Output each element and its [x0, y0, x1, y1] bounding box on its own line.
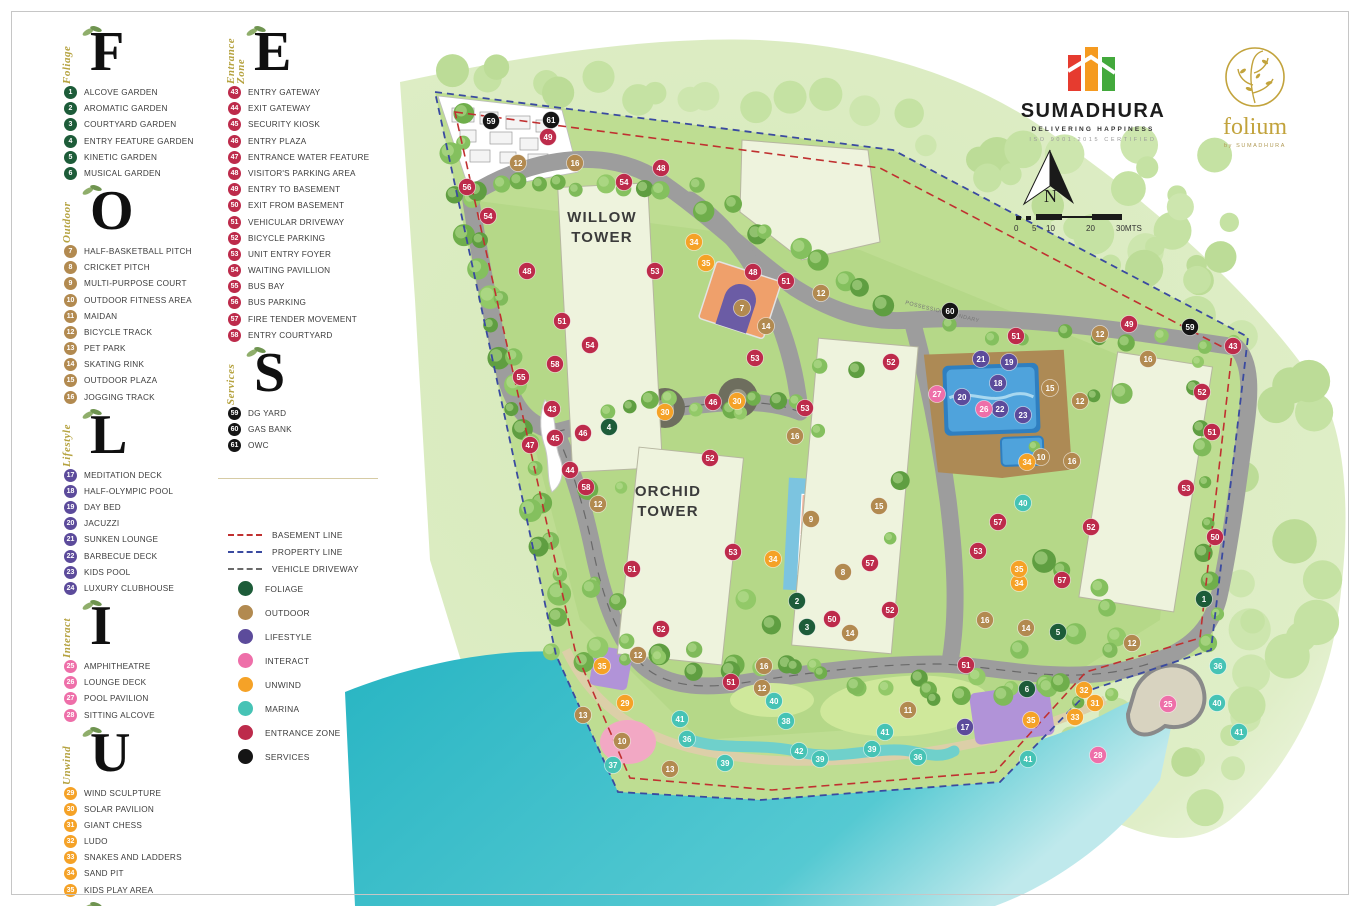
svg-text:53: 53 — [801, 404, 810, 413]
svg-text:41: 41 — [676, 715, 685, 724]
svg-text:9: 9 — [809, 515, 814, 524]
svg-text:21: 21 — [977, 355, 986, 364]
legend-item-label: BARBECUE DECK — [84, 550, 157, 562]
legend-item-number-badge: 46 — [228, 135, 241, 148]
map-marker-51: 51 — [1204, 424, 1221, 441]
map-marker-57: 57 — [862, 555, 879, 572]
legend-item: 2AROMATIC GARDEN — [64, 102, 219, 115]
map-marker-54: 54 — [616, 174, 633, 191]
svg-text:51: 51 — [628, 565, 637, 574]
legend-divider — [218, 478, 378, 479]
svg-text:39: 39 — [721, 759, 730, 768]
legend-item-number-badge: 14 — [64, 358, 77, 371]
legend-item: 50EXIT FROM BASEMENT — [228, 199, 398, 212]
map-marker-35: 35 — [698, 255, 715, 272]
scale-bar: 0 5 10 20 30MTS — [1014, 214, 1142, 233]
svg-text:41: 41 — [1235, 728, 1244, 737]
legend-item-label: LUDO — [84, 835, 108, 847]
map-marker-51: 51 — [778, 273, 795, 290]
svg-text:10: 10 — [1046, 224, 1055, 233]
svg-text:12: 12 — [817, 289, 826, 298]
map-marker-16: 16 — [567, 155, 584, 172]
legend-section-title: Foliage — [62, 32, 72, 84]
legend-column-2: Entrance ZoneE43ENTRY GATEWAY44EXIT GATE… — [228, 30, 398, 773]
map-marker-52: 52 — [653, 621, 670, 638]
svg-text:53: 53 — [751, 354, 760, 363]
legend-item-label: BUS PARKING — [248, 296, 306, 308]
legend-item-number-badge: 31 — [64, 819, 77, 832]
svg-text:18: 18 — [994, 379, 1003, 388]
map-marker-38: 38 — [778, 713, 795, 730]
svg-text:59: 59 — [1186, 323, 1195, 332]
map-marker-50: 50 — [1207, 529, 1224, 546]
legend-item: 29WIND SCULPTURE — [64, 787, 219, 800]
svg-text:57: 57 — [1058, 576, 1067, 585]
legend-item: 52BICYCLE PARKING — [228, 232, 398, 245]
svg-text:46: 46 — [579, 429, 588, 438]
legend-item-number-badge: 1 — [64, 86, 77, 99]
svg-text:2: 2 — [795, 597, 800, 606]
map-marker-12: 12 — [754, 680, 771, 697]
svg-text:31: 31 — [1091, 699, 1100, 708]
legend-section-header: UnwindU — [64, 731, 219, 781]
legend-item-number-badge: 17 — [64, 469, 77, 482]
svg-text:22: 22 — [996, 405, 1005, 414]
svg-text:35: 35 — [1027, 716, 1036, 725]
map-marker-45: 45 — [547, 430, 564, 447]
svg-text:8: 8 — [841, 568, 846, 577]
map-marker-50: 50 — [824, 611, 841, 628]
legend-item-label: DAY BED — [84, 501, 121, 513]
legend-item: 61OWC — [228, 439, 398, 452]
category-color-dot — [238, 653, 253, 668]
map-marker-34: 34 — [686, 234, 703, 251]
map-marker-12: 12 — [1072, 393, 1089, 410]
map-marker-51: 51 — [958, 657, 975, 674]
category-legend-item: FOLIAGE — [238, 581, 398, 596]
legend-item-number-badge: 2 — [64, 102, 77, 115]
legend-item-number-badge: 10 — [64, 294, 77, 307]
legend-item-number-badge: 55 — [228, 280, 241, 293]
line-legend-label: VEHICLE DRIVEWAY — [272, 564, 359, 574]
legend-item-number-badge: 57 — [228, 313, 241, 326]
svg-text:43: 43 — [1229, 342, 1238, 351]
legend-item-label: EXIT FROM BASEMENT — [248, 199, 344, 211]
svg-text:40: 40 — [1213, 699, 1222, 708]
map-marker-39: 39 — [812, 751, 829, 768]
legend-section-header: Entrance ZoneE — [228, 30, 398, 80]
legend-item-label: VISITOR'S PARKING AREA — [248, 167, 356, 179]
legend-section-letter: S — [254, 343, 285, 403]
map-marker-30: 30 — [729, 393, 746, 410]
legend-item: 47ENTRANCE WATER FEATURE — [228, 151, 398, 164]
svg-text:54: 54 — [586, 341, 595, 350]
legend-item: 51VEHICULAR DRIVEWAY — [228, 216, 398, 229]
legend-item: 55BUS BAY — [228, 280, 398, 293]
svg-text:46: 46 — [709, 398, 718, 407]
svg-text:15: 15 — [875, 502, 884, 511]
svg-text:14: 14 — [762, 322, 771, 331]
legend-item-label: ALCOVE GARDEN — [84, 86, 158, 98]
svg-text:40: 40 — [770, 697, 779, 706]
svg-text:51: 51 — [1208, 428, 1217, 437]
legend-section-title: Entrance Zone — [226, 32, 246, 84]
line-legend-label: PROPERTY LINE — [272, 547, 343, 557]
legend-item-number-badge: 20 — [64, 517, 77, 530]
svg-text:16: 16 — [981, 616, 990, 625]
legend-item-number-badge: 53 — [228, 248, 241, 261]
legend-item-number-badge: 19 — [64, 501, 77, 514]
map-marker-51: 51 — [723, 674, 740, 691]
map-marker-35: 35 — [1023, 712, 1040, 729]
legend-item-number-badge: 22 — [64, 550, 77, 563]
legend-item-label: WAITING PAVILLION — [248, 264, 330, 276]
svg-text:1: 1 — [1202, 595, 1207, 604]
svg-text:5: 5 — [1056, 628, 1061, 637]
legend-item-number-badge: 32 — [64, 835, 77, 848]
svg-text:36: 36 — [683, 735, 692, 744]
svg-text:28: 28 — [1094, 751, 1103, 760]
svg-text:39: 39 — [868, 745, 877, 754]
legend-item: 6MUSICAL GARDEN — [64, 167, 219, 180]
category-legend-item: ENTRANCE ZONE — [238, 725, 398, 740]
legend-item-label: DG YARD — [248, 407, 286, 419]
svg-text:54: 54 — [484, 212, 493, 221]
svg-text:30MTS: 30MTS — [1116, 224, 1142, 233]
legend-item-number-badge: 21 — [64, 533, 77, 546]
legend-item-label: MULTI-PURPOSE COURT — [84, 277, 187, 289]
map-marker-12: 12 — [510, 155, 527, 172]
map-marker-42: 42 — [791, 743, 808, 760]
svg-text:51: 51 — [962, 661, 971, 670]
legend-item-label: JOGGING TRACK — [84, 391, 155, 403]
legend-item-number-badge: 7 — [64, 245, 77, 258]
category-color-dot — [238, 725, 253, 740]
svg-text:12: 12 — [1096, 330, 1105, 339]
map-marker-41: 41 — [1231, 724, 1248, 741]
legend-item-label: BICYCLE PARKING — [248, 232, 325, 244]
legend-item-label: CRICKET PITCH — [84, 261, 150, 273]
svg-text:0: 0 — [1014, 224, 1019, 233]
svg-text:3: 3 — [805, 623, 810, 632]
category-legend-item: SERVICES — [238, 749, 398, 764]
svg-text:14: 14 — [846, 629, 855, 638]
svg-text:51: 51 — [727, 678, 736, 687]
map-marker-56: 56 — [459, 179, 476, 196]
map-marker-10: 10 — [614, 733, 631, 750]
line-swatch — [228, 568, 262, 570]
legend-section-letter: U — [90, 723, 130, 783]
svg-text:53: 53 — [729, 548, 738, 557]
svg-text:16: 16 — [1144, 355, 1153, 364]
legend-item-number-badge: 45 — [228, 118, 241, 131]
category-legend-label: ENTRANCE ZONE — [265, 728, 341, 738]
svg-text:TOWER: TOWER — [571, 229, 633, 246]
legend-item: 11MAIDAN — [64, 310, 219, 323]
legend-item-label: MAIDAN — [84, 310, 117, 322]
legend-item-label: BUS BAY — [248, 280, 285, 292]
map-marker-23: 23 — [1015, 407, 1032, 424]
map-marker-53: 53 — [797, 400, 814, 417]
legend-item-number-badge: 16 — [64, 391, 77, 404]
svg-text:17: 17 — [961, 723, 970, 732]
legend-item-label: LUXURY CLUBHOUSE — [84, 582, 174, 594]
map-marker-2: 2 — [789, 593, 806, 610]
sumadhura-name: SUMADHURA — [1018, 100, 1168, 123]
svg-text:29: 29 — [621, 699, 630, 708]
legend-section-unwind: UnwindU29WIND SCULPTURE30SOLAR PAVILION3… — [64, 731, 219, 897]
legend-item-label: ENTRANCE WATER FEATURE — [248, 151, 369, 163]
legend-section-letter: I — [90, 596, 112, 656]
map-marker-34: 34 — [765, 551, 782, 568]
category-legend-item: LIFESTYLE — [238, 629, 398, 644]
map-marker-49: 49 — [540, 129, 557, 146]
legend-item-number-badge: 28 — [64, 709, 77, 722]
legend-item-label: ENTRY TO BASEMENT — [248, 183, 340, 195]
svg-text:47: 47 — [526, 441, 535, 450]
svg-text:36: 36 — [1214, 662, 1223, 671]
legend-item: 24LUXURY CLUBHOUSE — [64, 582, 219, 595]
map-marker-47: 47 — [522, 437, 539, 454]
svg-text:39: 39 — [816, 755, 825, 764]
svg-text:40: 40 — [1019, 499, 1028, 508]
map-marker-59: 59 — [483, 113, 500, 130]
legend-section-title: Unwind — [62, 733, 72, 785]
folium-logo: folium by SUMADHURA — [1210, 45, 1300, 149]
svg-text:57: 57 — [994, 518, 1003, 527]
legend-item-label: SECURITY KIOSK — [248, 118, 320, 130]
map-marker-44: 44 — [562, 462, 579, 479]
legend-item-number-badge: 51 — [228, 216, 241, 229]
map-marker-11: 11 — [900, 702, 917, 719]
legend-item: 32LUDO — [64, 835, 219, 848]
category-color-dot — [238, 677, 253, 692]
legend-item-label: PET PARK — [84, 342, 126, 354]
map-marker-35: 35 — [594, 658, 611, 675]
legend-section-header: ServicesS — [228, 351, 398, 401]
svg-text:20: 20 — [1086, 224, 1095, 233]
map-marker-54: 54 — [582, 337, 599, 354]
category-color-dot — [238, 749, 253, 764]
svg-text:53: 53 — [1182, 484, 1191, 493]
legend-item: 15OUTDOOR PLAZA — [64, 374, 219, 387]
legend-item-number-badge: 18 — [64, 485, 77, 498]
map-marker-46: 46 — [575, 425, 592, 442]
legend-item: 28SITTING ALCOVE — [64, 709, 219, 722]
svg-text:52: 52 — [1198, 388, 1207, 397]
legend-item: 4ENTRY FEATURE GARDEN — [64, 135, 219, 148]
legend-item-number-badge: 25 — [64, 660, 77, 673]
legend-section-title: Services — [226, 353, 236, 405]
legend-item-number-badge: 50 — [228, 199, 241, 212]
map-marker-1: 1 — [1196, 591, 1213, 608]
svg-text:34: 34 — [690, 238, 699, 247]
map-marker-54: 54 — [480, 208, 497, 225]
svg-text:16: 16 — [571, 159, 580, 168]
legend-item: 30SOLAR PAVILION — [64, 803, 219, 816]
svg-text:52: 52 — [706, 454, 715, 463]
legend-item-label: SNAKES AND LADDERS — [84, 851, 182, 863]
legend-item: 23KIDS POOL — [64, 566, 219, 579]
legend-section-interact: InteractI25AMPHITHEATRE26LOUNGE DECK27PO… — [64, 604, 219, 722]
legend-item-label: SAND PIT — [84, 867, 124, 879]
legend-item-label: OWC — [248, 439, 269, 451]
legend-item-label: POOL PAVILION — [84, 692, 149, 704]
legend-section-title: Lifestyle — [62, 415, 72, 467]
map-marker-48: 48 — [745, 264, 762, 281]
svg-text:6: 6 — [1025, 685, 1030, 694]
map-marker-36: 36 — [1210, 658, 1227, 675]
svg-text:5: 5 — [1032, 224, 1037, 233]
legend-section-outdoor: OutdoorO7HALF-BASKETBALL PITCH8CRICKET P… — [64, 189, 219, 404]
legend-item: 3COURTYARD GARDEN — [64, 118, 219, 131]
north-and-scale: N 0 5 10 20 30MTS — [1008, 142, 1148, 237]
svg-text:53: 53 — [651, 267, 660, 276]
legend-item: 48VISITOR'S PARKING AREA — [228, 167, 398, 180]
svg-text:49: 49 — [544, 133, 553, 142]
folium-logo-icon — [1223, 45, 1287, 109]
map-marker-15: 15 — [871, 498, 888, 515]
legend-item: 14SKATING RINK — [64, 358, 219, 371]
legend-item: 25AMPHITHEATRE — [64, 660, 219, 673]
svg-text:20: 20 — [958, 393, 967, 402]
sumadhura-tagline: DELIVERING HAPPINESS — [1018, 126, 1168, 133]
map-marker-40: 40 — [766, 693, 783, 710]
legend-item-number-badge: 48 — [228, 167, 241, 180]
legend-item: 45SECURITY KIOSK — [228, 118, 398, 131]
category-legend-label: INTERACT — [265, 656, 309, 666]
legend-section-header: InteractI — [64, 604, 219, 654]
legend-item-label: COURTYARD GARDEN — [84, 118, 176, 130]
svg-text:12: 12 — [1128, 639, 1137, 648]
map-marker-53: 53 — [747, 350, 764, 367]
category-legend-label: SERVICES — [265, 752, 310, 762]
map-marker-6: 6 — [1019, 681, 1036, 698]
legend-item: 57FIRE TENDER MOVEMENT — [228, 313, 398, 326]
legend-item: 58ENTRY COURTYARD — [228, 329, 398, 342]
line-legend-item: PROPERTY LINE — [228, 547, 398, 557]
svg-text:58: 58 — [551, 360, 560, 369]
map-marker-43: 43 — [544, 401, 561, 418]
legend-item-number-badge: 6 — [64, 167, 77, 180]
legend-section-title: Outdoor — [62, 191, 72, 243]
svg-text:43: 43 — [548, 405, 557, 414]
svg-text:35: 35 — [598, 662, 607, 671]
legend-item: 9MULTI-PURPOSE COURT — [64, 277, 219, 290]
legend-item-label: SOLAR PAVILION — [84, 803, 154, 815]
legend-section-title: Interact — [62, 606, 72, 658]
legend-item-label: ENTRY FEATURE GARDEN — [84, 135, 194, 147]
svg-text:54: 54 — [620, 178, 629, 187]
sumadhura-logo-icon — [1067, 45, 1119, 93]
legend-item-number-badge: 3 — [64, 118, 77, 131]
legend-item-label: SUNKEN LOUNGE — [84, 533, 158, 545]
legend-item-number-badge: 60 — [228, 423, 241, 436]
legend-item-label: AROMATIC GARDEN — [84, 102, 168, 114]
map-marker-16: 16 — [1064, 453, 1081, 470]
legend-item-number-badge: 29 — [64, 787, 77, 800]
svg-text:56: 56 — [463, 183, 472, 192]
svg-text:33: 33 — [1071, 713, 1080, 722]
legend-section-letter: E — [254, 22, 291, 82]
sumadhura-logo: SUMADHURA DELIVERING HAPPINESS ISO 9001:… — [1018, 45, 1168, 143]
svg-text:10: 10 — [618, 737, 627, 746]
map-marker-57: 57 — [1054, 572, 1071, 589]
legend-item-number-badge: 34 — [64, 867, 77, 880]
legend-item-number-badge: 49 — [228, 183, 241, 196]
category-legend-item: INTERACT — [238, 653, 398, 668]
legend-item-number-badge: 8 — [64, 261, 77, 274]
svg-text:48: 48 — [523, 267, 532, 276]
svg-text:61: 61 — [547, 116, 556, 125]
branding-block: SUMADHURA DELIVERING HAPPINESS ISO 9001:… — [1018, 45, 1300, 149]
map-marker-27: 27 — [929, 386, 946, 403]
legend-item: 53UNIT ENTRY FOYER — [228, 248, 398, 261]
legend-item: 21SUNKEN LOUNGE — [64, 533, 219, 546]
legend-section-letter: L — [90, 405, 127, 465]
category-legend-label: LIFESTYLE — [265, 632, 312, 642]
map-marker-12: 12 — [1124, 635, 1141, 652]
map-marker-59: 59 — [1182, 319, 1199, 336]
map-marker-16: 16 — [1140, 351, 1157, 368]
svg-text:38: 38 — [782, 717, 791, 726]
map-marker-12: 12 — [590, 496, 607, 513]
map-marker-12: 12 — [1092, 326, 1109, 343]
legend-item: 44EXIT GATEWAY — [228, 102, 398, 115]
legend-item-number-badge: 54 — [228, 264, 241, 277]
legend-section-services: ServicesS59DG YARD60GAS BANK61OWC — [228, 351, 398, 452]
folium-name: folium — [1210, 114, 1300, 141]
legend-item-number-badge: 43 — [228, 86, 241, 99]
svg-text:57: 57 — [866, 559, 875, 568]
map-marker-16: 16 — [787, 428, 804, 445]
svg-text:4: 4 — [607, 423, 612, 432]
legend-item-number-badge: 12 — [64, 326, 77, 339]
legend-item: 26LOUNGE DECK — [64, 676, 219, 689]
map-marker-36: 36 — [910, 749, 927, 766]
svg-text:34: 34 — [1023, 458, 1032, 467]
category-color-dot — [238, 629, 253, 644]
map-marker-18: 18 — [990, 375, 1007, 392]
map-marker-35: 35 — [1011, 561, 1028, 578]
svg-text:TOWER: TOWER — [637, 503, 699, 520]
svg-text:16: 16 — [760, 662, 769, 671]
legend-item-label: UNIT ENTRY FOYER — [248, 248, 331, 260]
map-marker-51: 51 — [624, 561, 641, 578]
legend-item-label: KIDS PLAY AREA — [84, 884, 153, 896]
legend-item: 12BICYCLE TRACK — [64, 326, 219, 339]
svg-text:13: 13 — [579, 711, 588, 720]
svg-text:55: 55 — [517, 373, 526, 382]
svg-text:19: 19 — [1005, 358, 1014, 367]
category-legend-label: OUTDOOR — [265, 608, 310, 618]
map-marker-53: 53 — [970, 543, 987, 560]
svg-text:26: 26 — [980, 405, 989, 414]
legend-item-label: SITTING ALCOVE — [84, 709, 155, 721]
map-marker-39: 39 — [717, 755, 734, 772]
category-legend-item: MARINA — [238, 701, 398, 716]
legend-item: 7HALF-BASKETBALL PITCH — [64, 245, 219, 258]
legend-item-label: ENTRY COURTYARD — [248, 329, 333, 341]
map-marker-7: 7 — [734, 300, 751, 317]
svg-text:50: 50 — [828, 615, 837, 624]
map-marker-5: 5 — [1050, 624, 1067, 641]
legend-item-label: FIRE TENDER MOVEMENT — [248, 313, 357, 325]
legend-section-header: OutdoorO — [64, 189, 219, 239]
svg-text:16: 16 — [1068, 457, 1077, 466]
svg-text:41: 41 — [881, 728, 890, 737]
map-marker-41: 41 — [672, 711, 689, 728]
